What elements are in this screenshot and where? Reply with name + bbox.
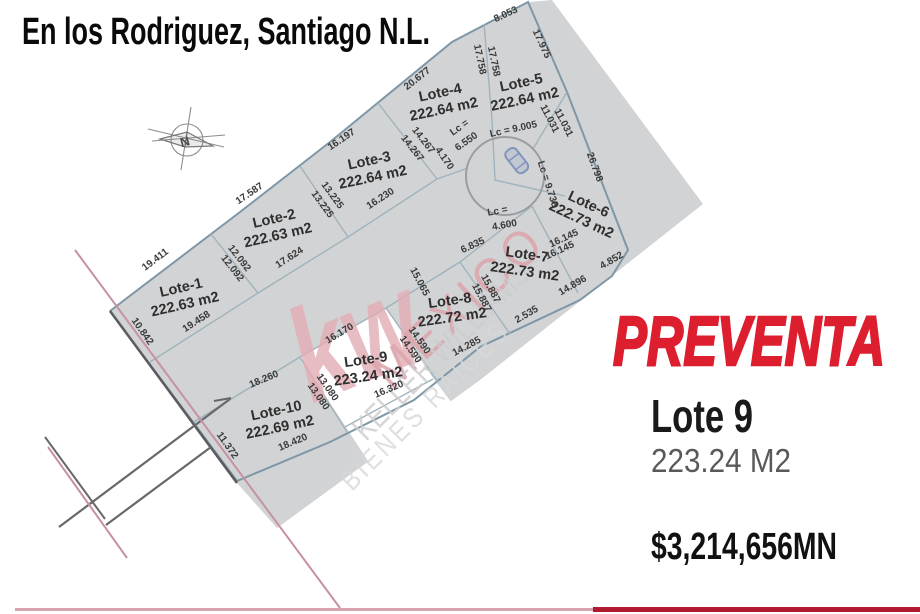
svg-text:PREVENTA: PREVENTA xyxy=(613,302,885,380)
svg-text:Lote 9: Lote 9 xyxy=(651,390,753,442)
svg-text:En los Rodriguez, Santiago N.L: En los Rodriguez, Santiago N.L. xyxy=(22,11,430,53)
svg-text:$3,214,656MN: $3,214,656MN xyxy=(651,526,837,568)
svg-text:223.24 M2: 223.24 M2 xyxy=(651,442,791,479)
